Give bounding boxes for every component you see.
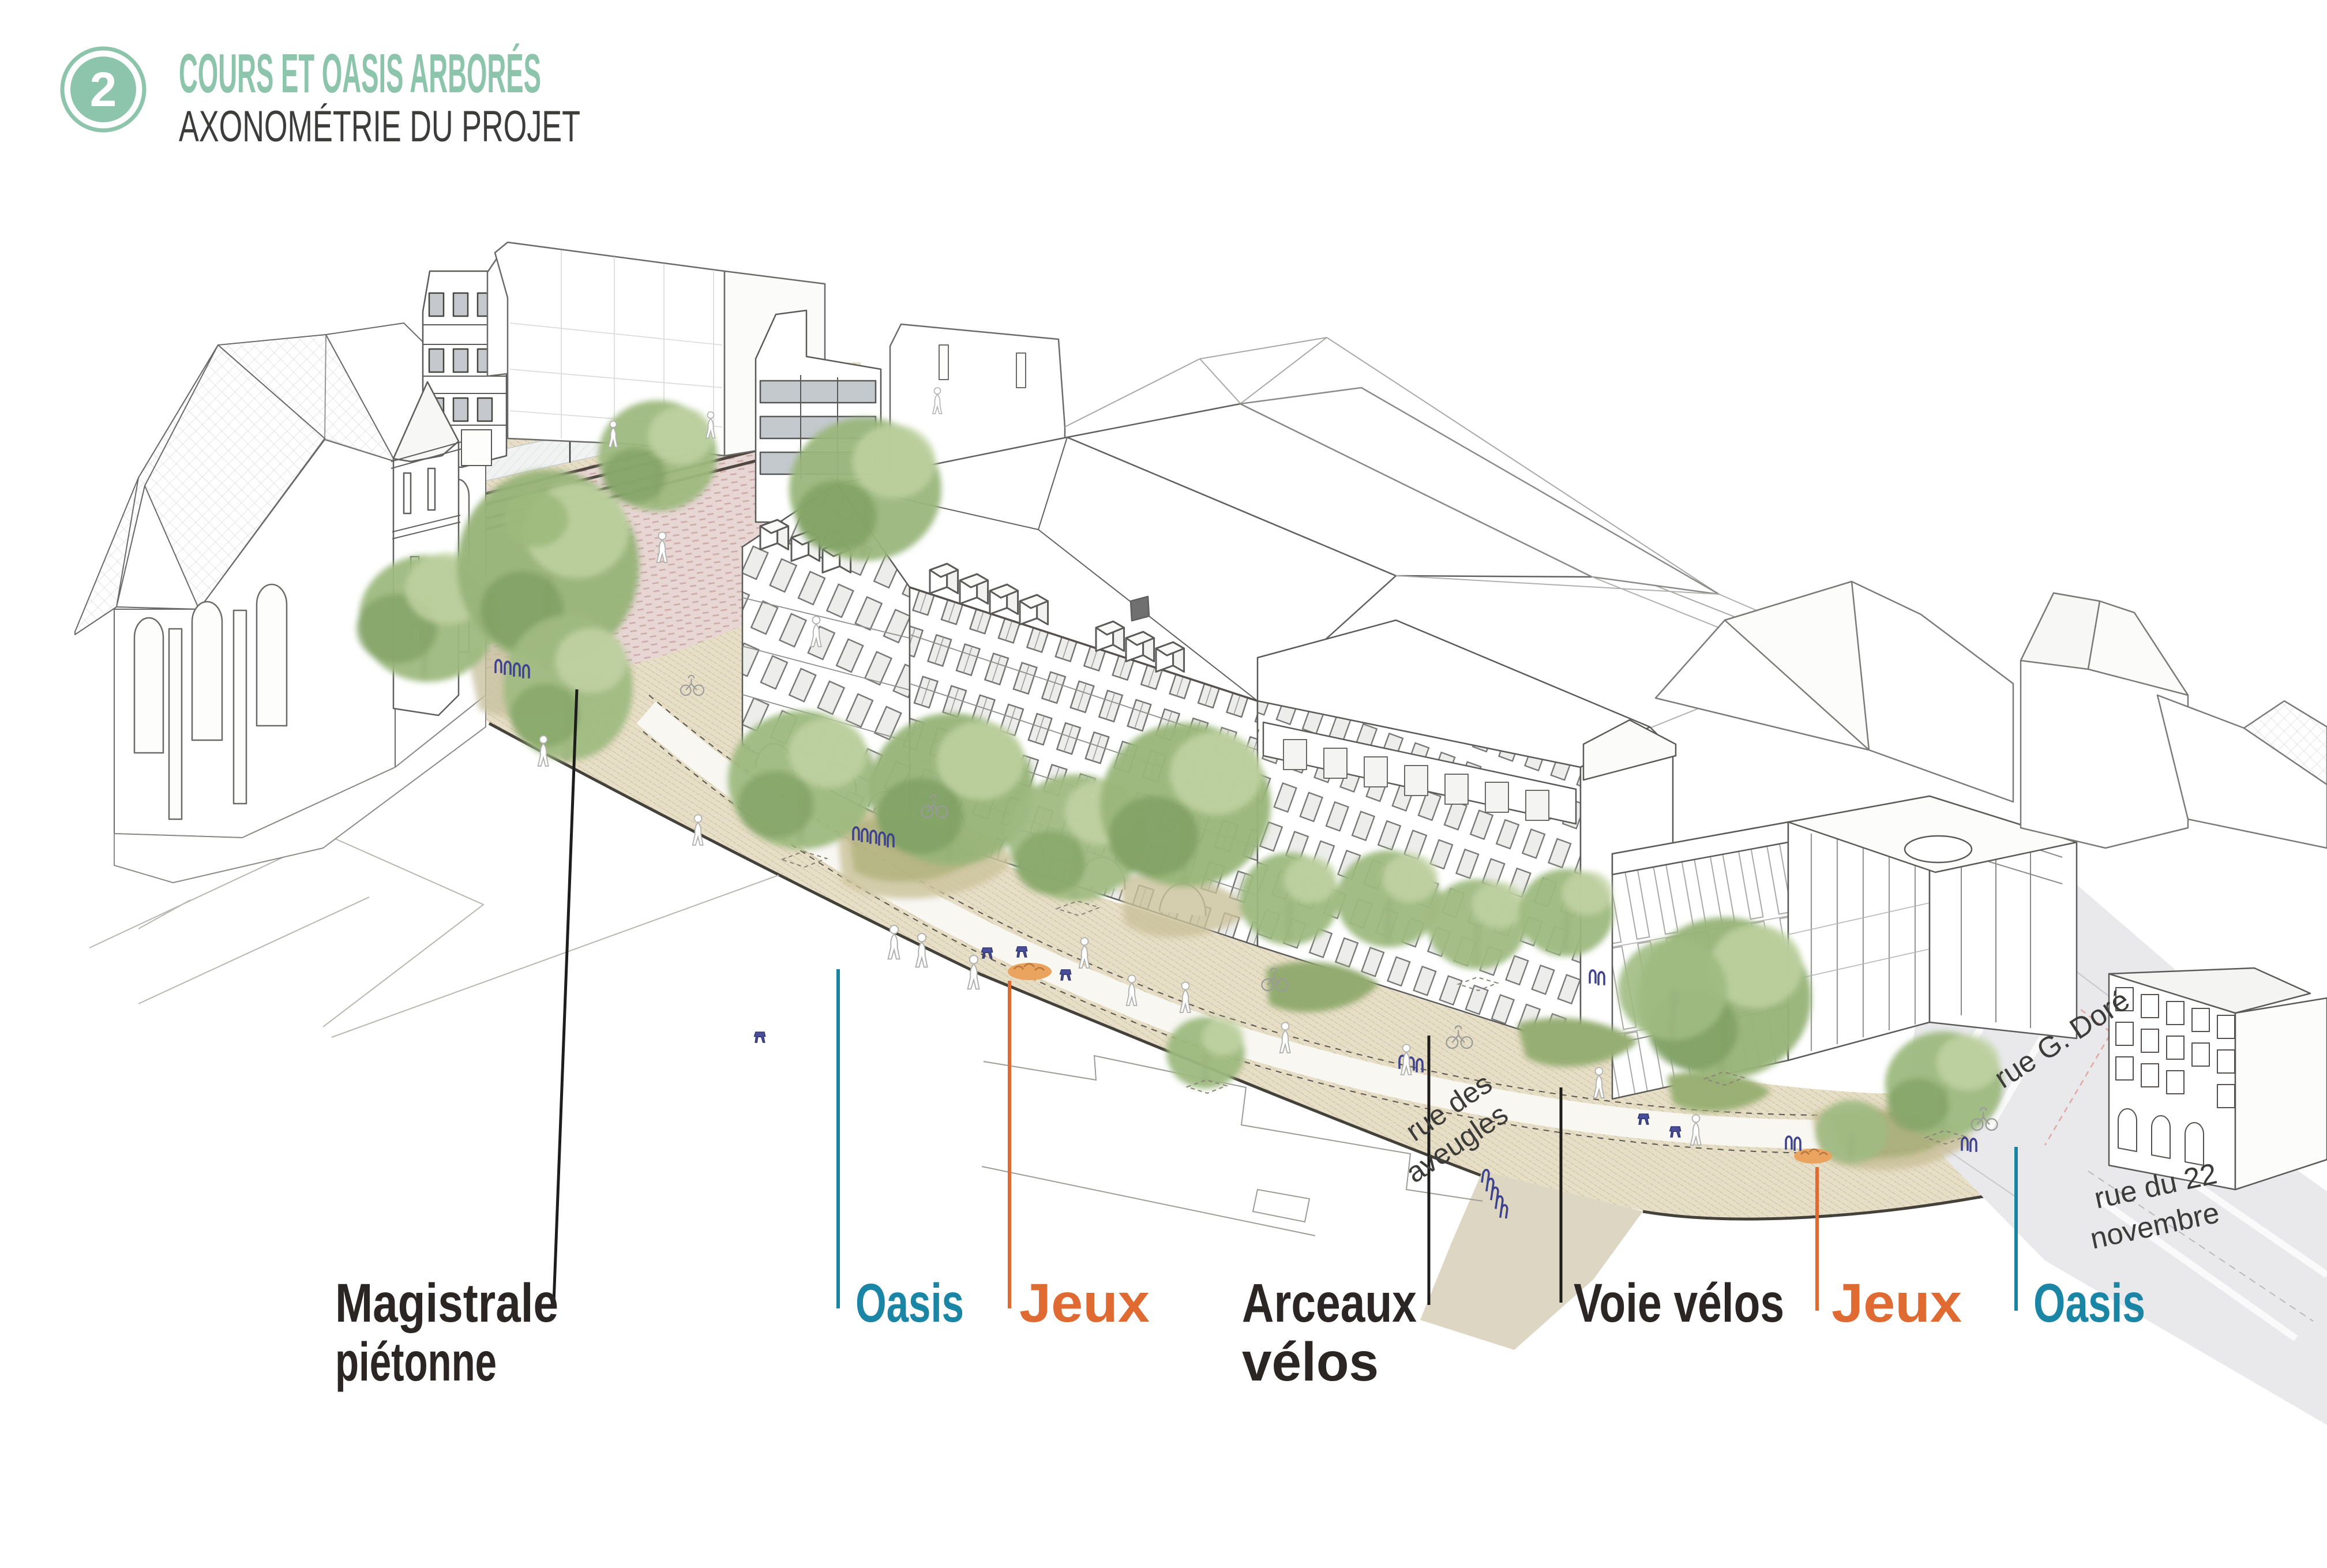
svg-text:AXONOMÉTRIE DU PROJET: AXONOMÉTRIE DU PROJET [179,102,580,151]
svg-text:Oasis: Oasis [855,1273,964,1334]
svg-text:2: 2 [90,62,117,117]
svg-text:COURS ET OASIS ARBORÉS: COURS ET OASIS ARBORÉS [179,43,541,104]
svg-text:Voie vélos: Voie vélos [1574,1273,1784,1334]
svg-text:Arceaux: Arceaux [1242,1273,1417,1334]
svg-text:piétonne: piétonne [335,1331,497,1393]
svg-text:Jeux: Jeux [1019,1273,1150,1334]
svg-text:Magistrale: Magistrale [335,1273,558,1334]
svg-text:Jeux: Jeux [1831,1273,1962,1334]
svg-text:vélos: vélos [1242,1331,1379,1393]
svg-text:Oasis: Oasis [2033,1273,2145,1334]
